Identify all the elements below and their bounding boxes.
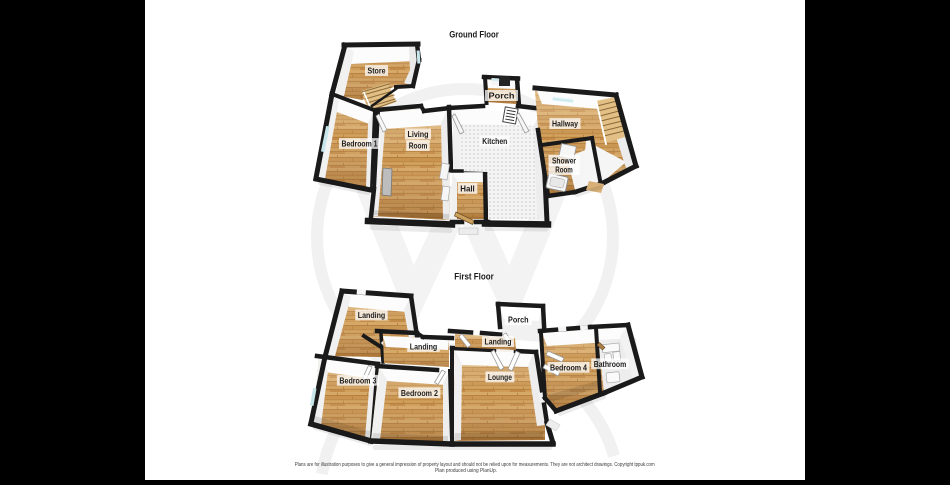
svg-text:Porch: Porch [489, 92, 515, 101]
svg-text:Bedroom 4: Bedroom 4 [550, 363, 587, 372]
svg-text:Store: Store [368, 67, 386, 76]
svg-text:Bedroom 3: Bedroom 3 [339, 376, 376, 385]
svg-text:Room: Room [555, 166, 573, 175]
svg-text:Hallway: Hallway [552, 120, 578, 129]
svg-text:Room: Room [409, 142, 428, 151]
svg-text:Lounge: Lounge [488, 373, 512, 382]
svg-text:Bedroom 1: Bedroom 1 [342, 140, 378, 149]
svg-text:Kitchen: Kitchen [482, 137, 507, 146]
svg-text:Landing: Landing [410, 343, 438, 352]
svg-text:Landing: Landing [358, 311, 386, 320]
svg-text:Ground Floor: Ground Floor [449, 30, 499, 41]
svg-text:Porch: Porch [508, 316, 529, 325]
svg-text:Landing: Landing [485, 338, 512, 347]
svg-text:Plan produced using PlanUp.: Plan produced using PlanUp. [435, 468, 497, 474]
svg-text:First Floor: First Floor [454, 272, 494, 283]
svg-text:Bathroom: Bathroom [594, 360, 627, 369]
svg-text:Living: Living [408, 130, 429, 139]
svg-text:Hall: Hall [460, 185, 475, 194]
svg-text:Bedroom 2: Bedroom 2 [401, 389, 438, 398]
